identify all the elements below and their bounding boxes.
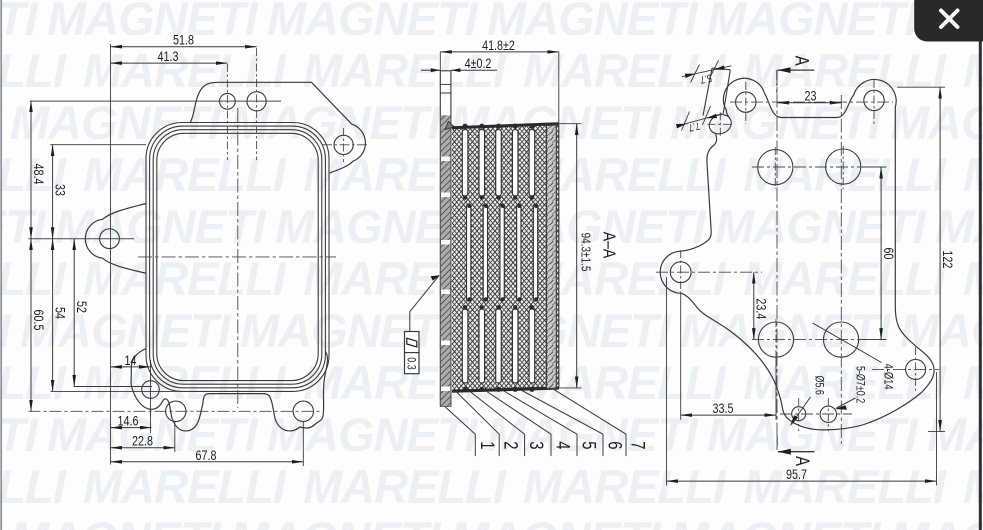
svg-text:A: A	[791, 56, 812, 66]
svg-text:MAGNETI: MAGNETI	[890, 512, 983, 530]
svg-text:MAGNETI: MAGNETI	[670, 512, 882, 530]
svg-text:0.3: 0.3	[404, 357, 416, 370]
svg-text:MAGNETI: MAGNETI	[240, 304, 452, 357]
svg-text:MAGNETI: MAGNETI	[707, 0, 919, 45]
svg-text:MAGNETI: MAGNETI	[707, 408, 919, 461]
svg-text:MAGNETI: MAGNETI	[230, 512, 442, 530]
svg-text:52: 52	[74, 301, 90, 313]
svg-text:23.4: 23.4	[753, 298, 769, 319]
svg-text:4-Ø14: 4-Ø14	[881, 364, 894, 390]
svg-text:MARELLI: MARELLI	[83, 252, 287, 305]
svg-text:MARELLI: MARELLI	[743, 148, 947, 201]
svg-text:33: 33	[52, 184, 68, 196]
svg-text:2: 2	[500, 441, 521, 449]
svg-text:MARELLI: MARELLI	[83, 148, 287, 201]
svg-text:4±0.2: 4±0.2	[465, 56, 492, 72]
svg-text:MAGNETI: MAGNETI	[267, 408, 479, 461]
svg-text:54: 54	[52, 307, 68, 319]
svg-text:41.8±2: 41.8±2	[482, 38, 515, 54]
svg-text:MARELLI: MARELLI	[303, 460, 507, 513]
svg-text:MARELLI: MARELLI	[0, 460, 67, 513]
svg-text:122: 122	[940, 250, 956, 268]
svg-text:MARELLI: MARELLI	[0, 356, 67, 409]
svg-text:MAGNETI: MAGNETI	[267, 0, 479, 45]
svg-text:MARELLI: MARELLI	[743, 460, 947, 513]
svg-text:48.4: 48.4	[30, 164, 46, 185]
svg-text:MAGNETI: MAGNETI	[10, 512, 222, 530]
svg-text:MAGNETI: MAGNETI	[20, 304, 232, 357]
svg-text:6: 6	[604, 441, 625, 449]
svg-text:MARELLI: MARELLI	[743, 44, 947, 97]
svg-text:MAGNETI: MAGNETI	[890, 96, 983, 149]
svg-text:14: 14	[125, 353, 137, 369]
svg-text:22.8: 22.8	[132, 433, 153, 449]
svg-text:MARELLI: MARELLI	[83, 460, 287, 513]
svg-text:33.5: 33.5	[713, 401, 734, 417]
svg-text:67.8: 67.8	[196, 448, 217, 464]
svg-text:MARELLI: MARELLI	[83, 356, 287, 409]
svg-text:60: 60	[881, 248, 897, 260]
svg-text:60.5: 60.5	[30, 310, 46, 331]
svg-text:95.7: 95.7	[786, 467, 807, 483]
svg-text:1: 1	[476, 441, 497, 449]
svg-text:14.6: 14.6	[118, 413, 139, 429]
svg-text:MAGNETI: MAGNETI	[900, 304, 983, 357]
svg-text:MARELLI: MARELLI	[0, 252, 67, 305]
svg-text:5-Ø7±0.2: 5-Ø7±0.2	[853, 366, 865, 404]
svg-text:41.3: 41.3	[158, 49, 179, 65]
svg-text:MARELLI: MARELLI	[743, 252, 947, 305]
svg-text:23: 23	[805, 88, 817, 104]
svg-text:A–A: A–A	[599, 232, 619, 259]
svg-text:3: 3	[526, 441, 547, 449]
svg-text:MAGNETI: MAGNETI	[680, 304, 892, 357]
svg-text:A: A	[791, 456, 812, 466]
svg-text:MAGNETI: MAGNETI	[0, 0, 39, 45]
svg-text:7: 7	[627, 441, 648, 449]
svg-text:MAGNETI: MAGNETI	[0, 408, 39, 461]
svg-text:MARELLI: MARELLI	[0, 44, 67, 97]
svg-text:4: 4	[552, 441, 573, 449]
svg-text:Ø5.6: Ø5.6	[812, 375, 824, 395]
svg-text:MAGNETI: MAGNETI	[927, 408, 983, 461]
svg-text:MAGNETI: MAGNETI	[487, 0, 699, 45]
svg-text:94.3±1.5: 94.3±1.5	[578, 233, 591, 272]
svg-text:51.8: 51.8	[173, 32, 194, 48]
svg-text:MAGNETI: MAGNETI	[0, 200, 47, 253]
svg-text:MAGNETI: MAGNETI	[935, 200, 983, 253]
svg-text:MAGNETI: MAGNETI	[670, 96, 882, 149]
svg-text:MAGNETI: MAGNETI	[450, 512, 662, 530]
svg-text:MAGNETI: MAGNETI	[47, 0, 259, 45]
svg-text:5: 5	[578, 441, 599, 449]
svg-text:MARELLI: MARELLI	[743, 356, 947, 409]
svg-text:MARELLI: MARELLI	[523, 460, 727, 513]
